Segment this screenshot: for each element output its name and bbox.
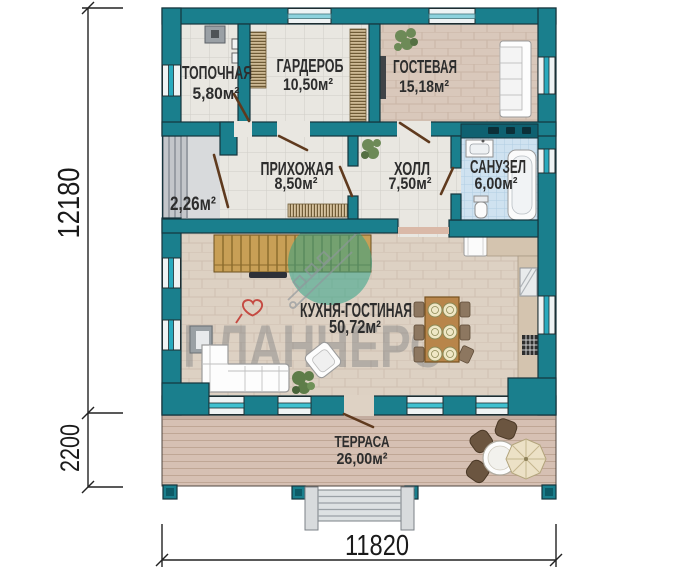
svg-text:ТОПОЧНАЯ: ТОПОЧНАЯ (182, 63, 252, 83)
svg-text:26,00м²: 26,00м² (337, 451, 388, 468)
svg-text:5,80м²: 5,80м² (193, 84, 240, 103)
svg-text:6,00м²: 6,00м² (475, 174, 518, 193)
svg-text:2200: 2200 (55, 424, 85, 472)
svg-text:7,50м²: 7,50м² (389, 174, 432, 193)
svg-text:15,18м²: 15,18м² (399, 77, 449, 96)
svg-text:ГОСТЕВАЯ: ГОСТЕВАЯ (393, 57, 457, 77)
svg-text:12180: 12180 (51, 168, 86, 239)
svg-text:ТЕРРАСА: ТЕРРАСА (335, 434, 390, 451)
svg-text:ГАРДЕРОБ: ГАРДЕРОБ (277, 56, 344, 76)
svg-text:2,26м²: 2,26м² (170, 194, 216, 215)
svg-text:11820: 11820 (345, 530, 409, 562)
svg-text:8,50м²: 8,50м² (275, 174, 318, 193)
svg-text:50,72м²: 50,72м² (329, 317, 381, 337)
svg-text:10,50м²: 10,50м² (283, 75, 333, 94)
